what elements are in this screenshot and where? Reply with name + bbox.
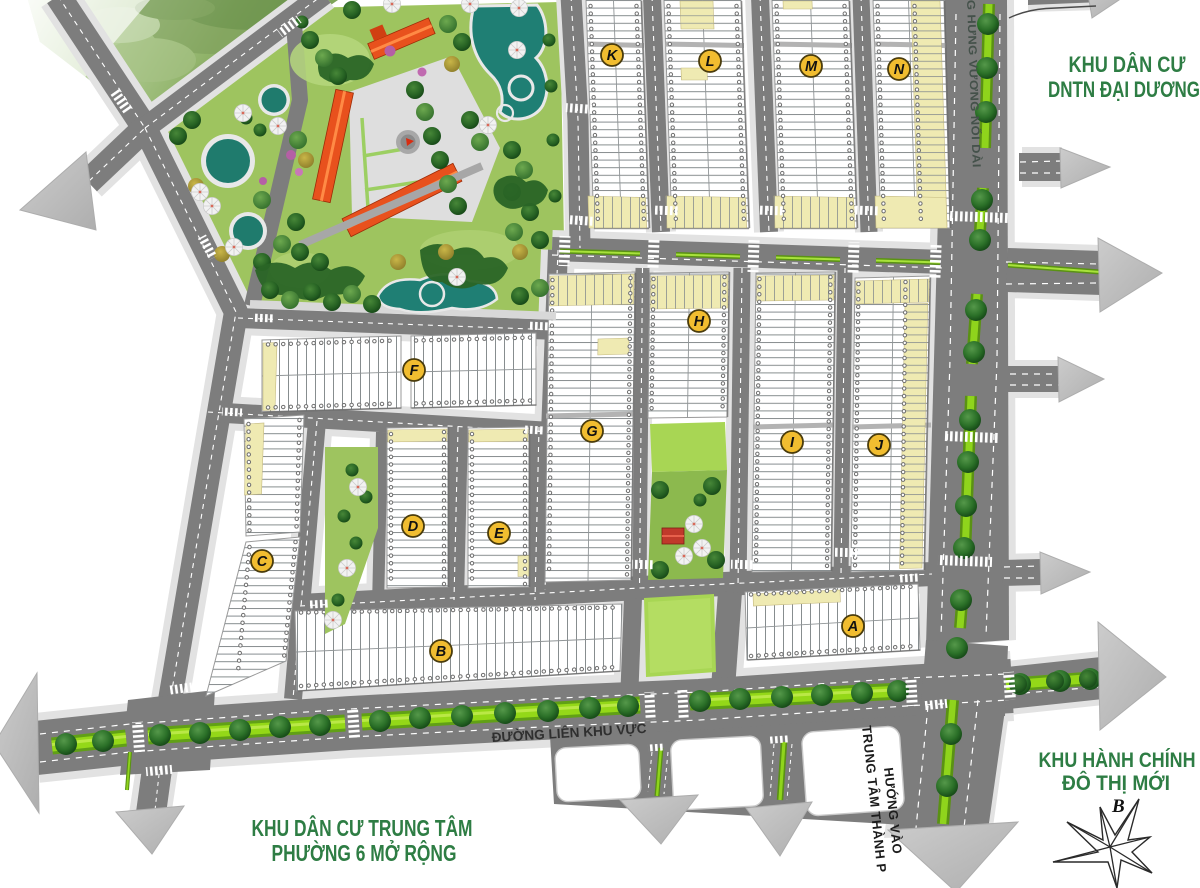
svg-text:B: B — [1111, 796, 1125, 817]
svg-text:B: B — [436, 644, 446, 660]
svg-text:D: D — [408, 519, 419, 535]
svg-text:H: H — [694, 314, 705, 330]
svg-text:KHU HÀNH CHÍNH: KHU HÀNH CHÍNH — [1039, 749, 1196, 772]
svg-text:KHU DÂN CƯ TRUNG TÂM: KHU DÂN CƯ TRUNG TÂM — [252, 814, 473, 841]
svg-text:DNTN ĐẠI DƯƠNG: DNTN ĐẠI DƯƠNG — [1048, 77, 1200, 102]
svg-text:F: F — [410, 363, 420, 379]
svg-text:K: K — [607, 48, 619, 64]
svg-text:A: A — [847, 619, 858, 635]
svg-text:ĐÔ THỊ MỚI: ĐÔ THỊ MỚI — [1062, 771, 1170, 795]
svg-text:L: L — [706, 54, 715, 70]
svg-text:J: J — [875, 438, 884, 454]
svg-text:E: E — [494, 526, 505, 542]
svg-text:KHU DÂN CƯ: KHU DÂN CƯ — [1069, 52, 1187, 77]
svg-text:G: G — [586, 424, 597, 440]
svg-text:N: N — [894, 62, 905, 78]
svg-text:C: C — [257, 554, 268, 570]
svg-text:PHƯỜNG 6 MỞ RỘNG: PHƯỜNG 6 MỞ RỘNG — [272, 838, 457, 866]
svg-text:M: M — [805, 59, 818, 75]
